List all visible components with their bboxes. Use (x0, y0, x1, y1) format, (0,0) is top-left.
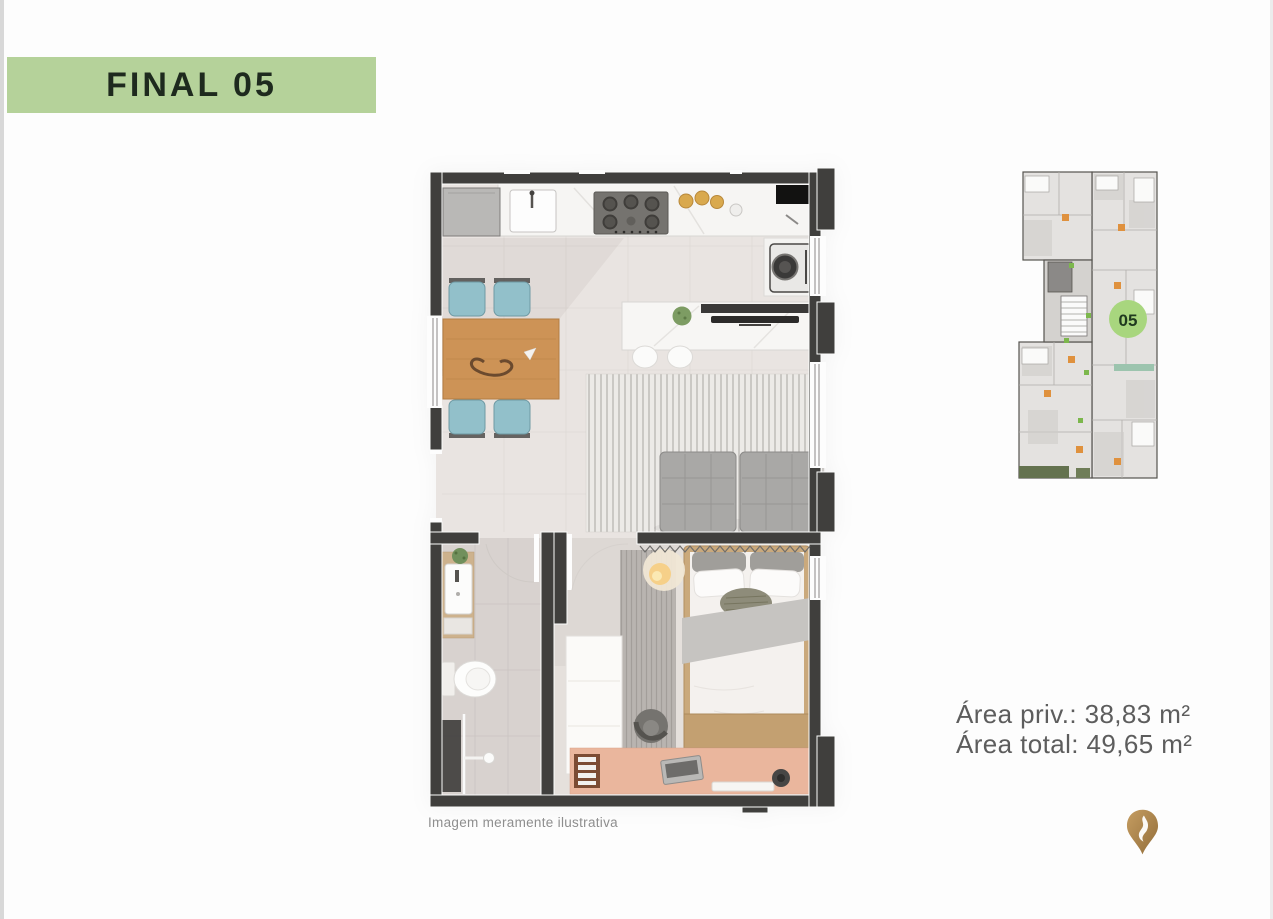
unit-title-banner: FINAL 05 (7, 57, 376, 113)
floor-plan-image (424, 166, 845, 814)
page-left-edge (0, 0, 4, 919)
area-total: Área total: 49,65 m² (956, 729, 1192, 759)
floor-plan-caption: Imagem meramente ilustrativa (428, 815, 618, 830)
area-info: Área priv.: 38,83 m² Área total: 49,65 m… (956, 699, 1192, 759)
area-private: Área priv.: 38,83 m² (956, 699, 1192, 729)
unit-badge-label: 05 (1119, 311, 1138, 330)
unit-title: FINAL 05 (106, 66, 277, 105)
gold-location-pin-icon (1126, 808, 1159, 858)
living-rug-sofa (586, 374, 824, 537)
building-key-plan: 05 (1014, 170, 1166, 482)
unit-badge: 05 (1109, 300, 1147, 338)
floor-plan-illustration (424, 166, 845, 814)
building-key-plan-illustration: 05 (1014, 170, 1166, 482)
